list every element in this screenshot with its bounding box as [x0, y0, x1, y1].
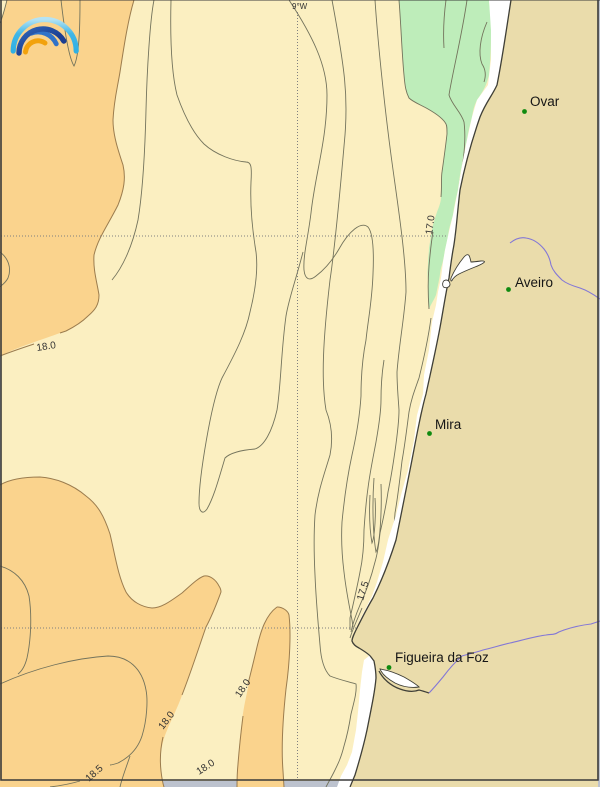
svg-text:Figueira da Foz: Figueira da Foz [395, 650, 489, 665]
svg-text:Mira: Mira [435, 417, 462, 432]
svg-text:9°W: 9°W [292, 2, 308, 11]
svg-text:Aveiro: Aveiro [515, 275, 553, 290]
svg-text:Ovar: Ovar [530, 94, 560, 109]
